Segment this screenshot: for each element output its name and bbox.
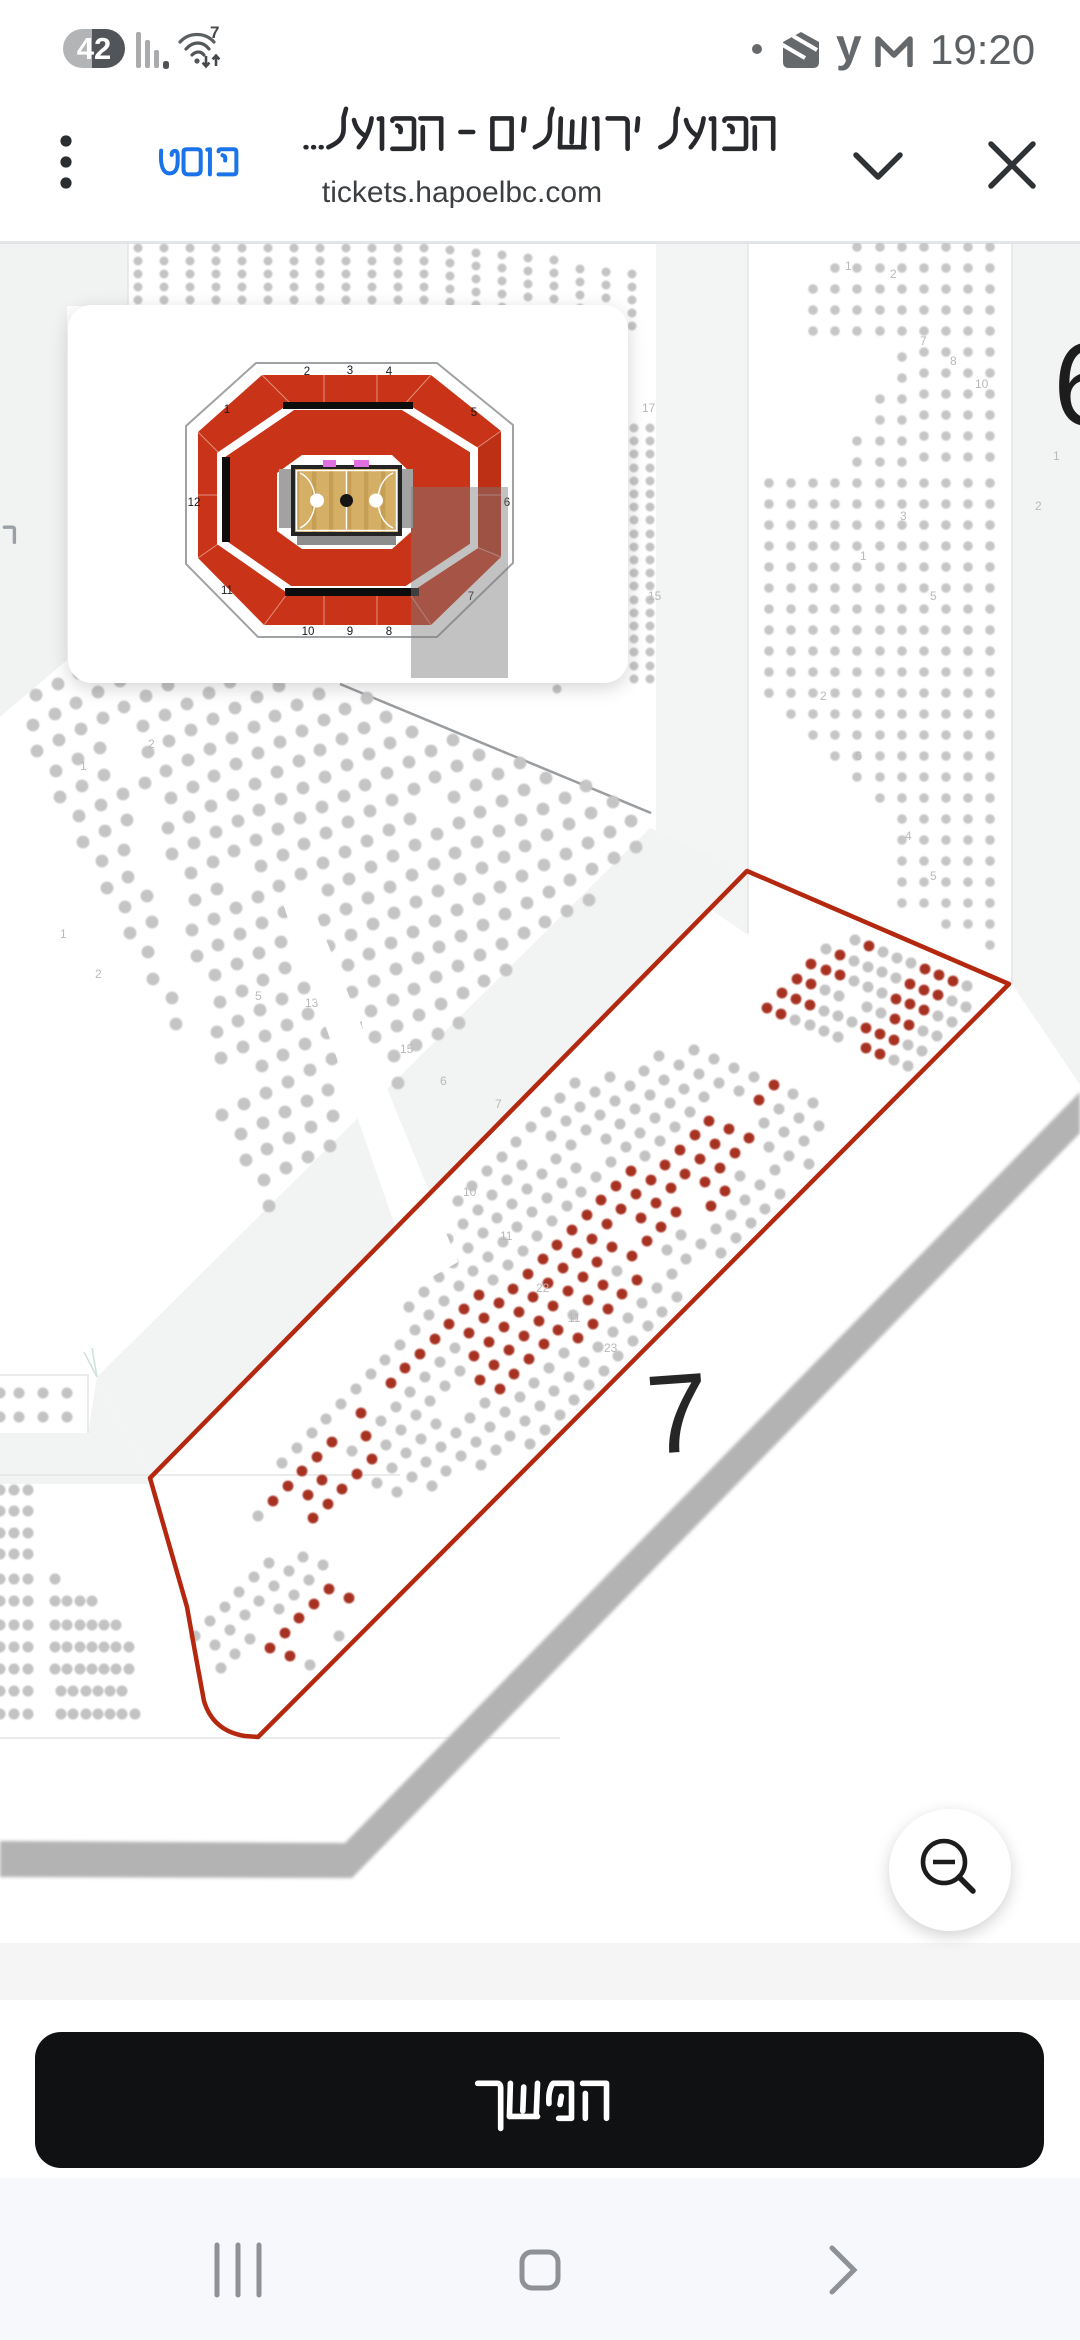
svg-text:10: 10 (975, 377, 989, 391)
svg-text:9: 9 (347, 626, 353, 638)
svg-text:12: 12 (188, 497, 201, 509)
svg-text:2: 2 (304, 366, 310, 378)
svg-text:1: 1 (80, 759, 87, 773)
svg-text:5: 5 (255, 989, 262, 1003)
svg-text:5: 5 (471, 407, 477, 419)
svg-text:6: 6 (440, 1074, 447, 1088)
svg-text:10: 10 (463, 1185, 477, 1199)
svg-text:1: 1 (224, 404, 230, 416)
svg-text:7: 7 (920, 334, 927, 348)
svg-text:6: 6 (855, 749, 862, 763)
svg-text:1: 1 (1053, 449, 1060, 463)
svg-text:2: 2 (95, 967, 102, 981)
svg-text:2: 2 (1035, 499, 1042, 513)
svg-text:8: 8 (386, 626, 392, 638)
svg-text:1: 1 (845, 259, 852, 273)
svg-text:5: 5 (930, 589, 937, 603)
svg-text:1: 1 (860, 549, 867, 563)
svg-text:22: 22 (536, 1281, 550, 1295)
svg-text:6: 6 (1053, 319, 1080, 451)
svg-text:1: 1 (60, 927, 67, 941)
svg-text:5: 5 (930, 869, 937, 883)
svg-text:11: 11 (568, 1311, 581, 1325)
svg-text:3: 3 (347, 365, 353, 377)
svg-text:23: 23 (604, 1341, 618, 1355)
svg-text:4: 4 (905, 829, 912, 843)
svg-text:10: 10 (302, 626, 315, 638)
svg-text:2: 2 (890, 267, 897, 281)
svg-text:2: 2 (820, 689, 827, 703)
svg-text:2: 2 (148, 737, 155, 751)
svg-text:11: 11 (221, 585, 233, 597)
svg-text:4: 4 (386, 366, 393, 378)
svg-text:17: 17 (642, 401, 656, 415)
svg-text:7: 7 (495, 1097, 502, 1111)
svg-text:15: 15 (400, 1042, 414, 1056)
svg-text:3: 3 (900, 509, 907, 523)
svg-text:8: 8 (950, 354, 957, 368)
svg-text:15: 15 (648, 589, 662, 603)
svg-text:7: 7 (642, 1349, 713, 1478)
svg-text:11: 11 (500, 1229, 513, 1243)
